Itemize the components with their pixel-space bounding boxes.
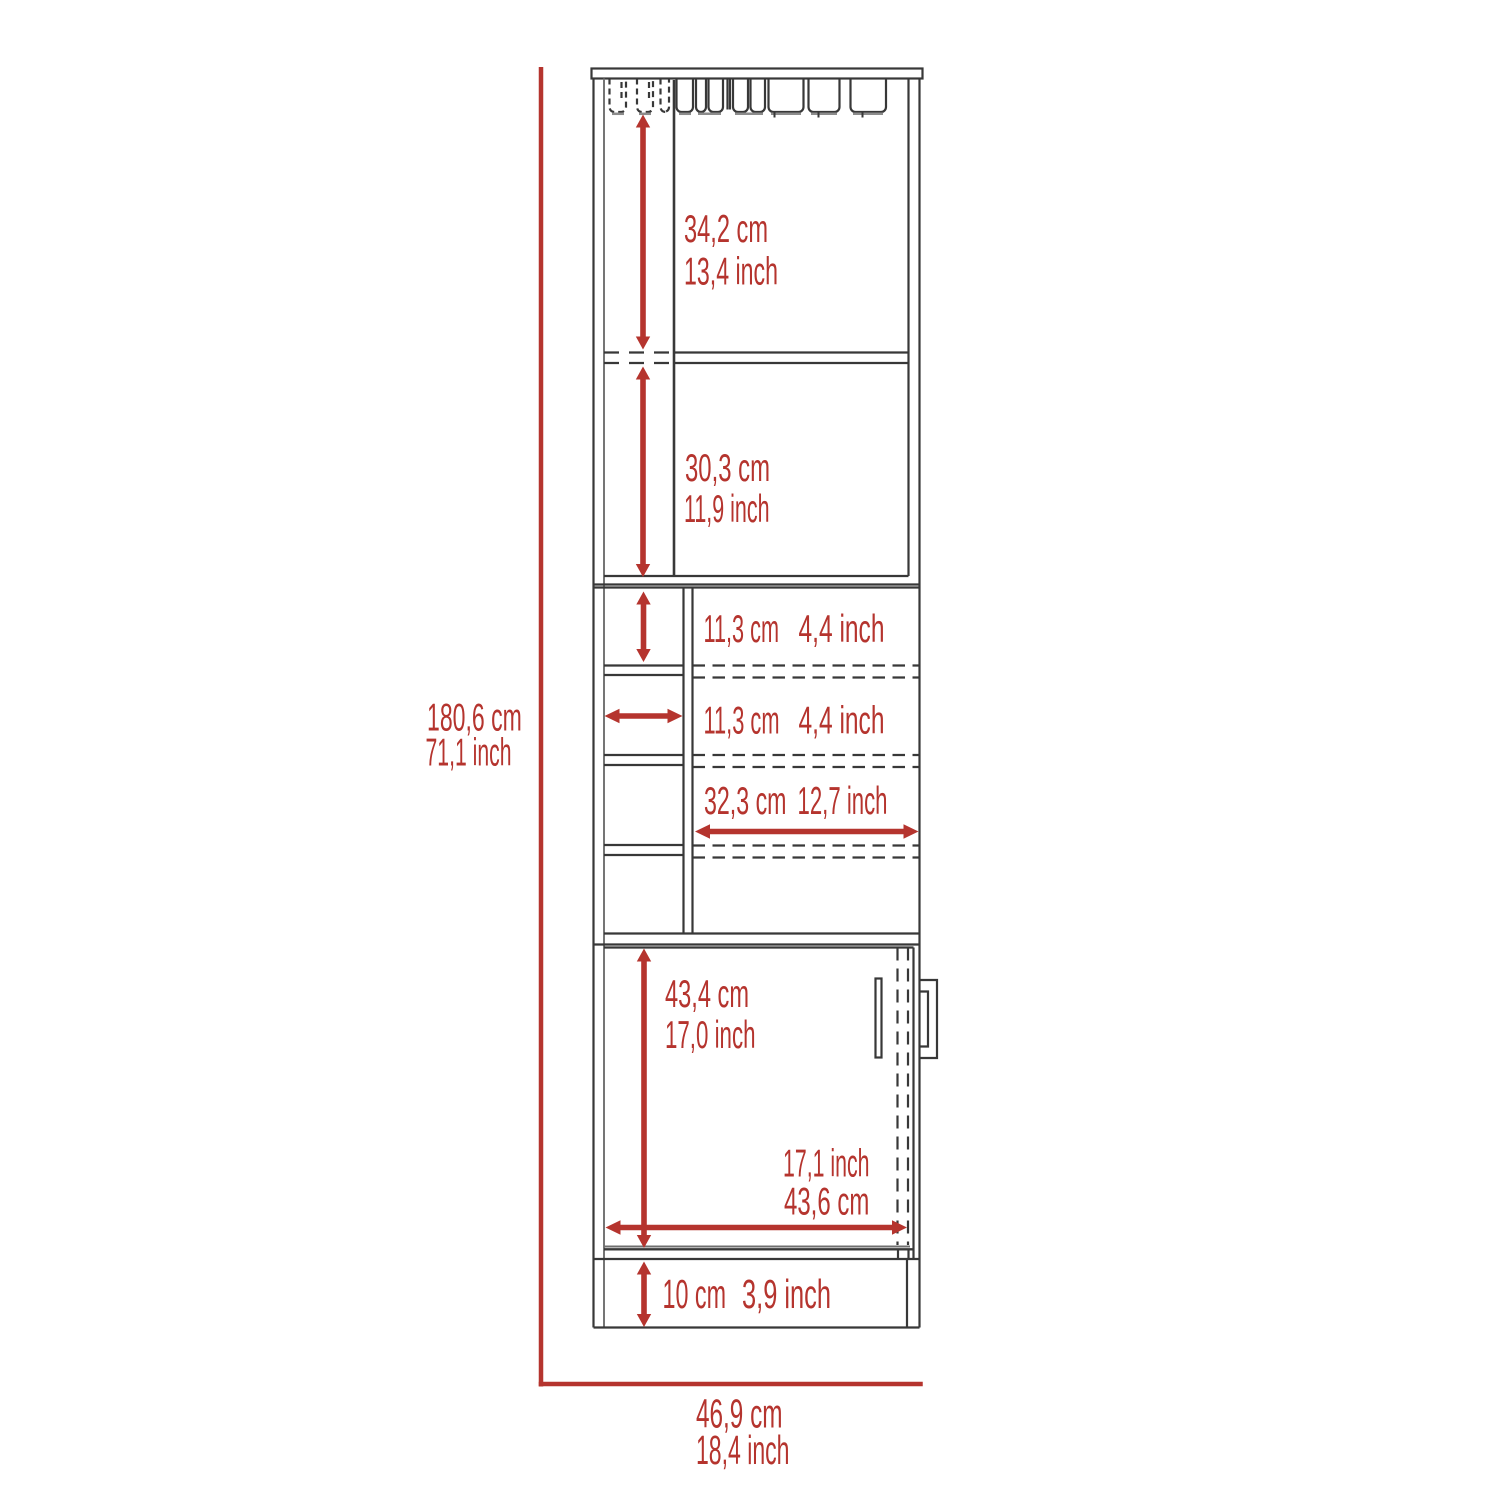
svg-text:43,6 cm: 43,6 cm <box>784 1181 869 1224</box>
svg-text:4,4 inch: 4,4 inch <box>799 700 885 743</box>
svg-text:10 cm: 10 cm <box>663 1271 727 1317</box>
svg-text:43,4 cm: 43,4 cm <box>665 973 749 1016</box>
svg-text:11,3 cm: 11,3 cm <box>704 608 780 651</box>
svg-text:30,3 cm: 30,3 cm <box>685 447 770 490</box>
svg-text:71,1 inch: 71,1 inch <box>426 732 512 775</box>
svg-text:11,9 inch: 11,9 inch <box>684 488 770 531</box>
svg-text:3,9 inch: 3,9 inch <box>742 1271 831 1317</box>
svg-text:34,2 cm: 34,2 cm <box>684 208 768 251</box>
svg-text:32,3 cm: 32,3 cm <box>704 780 787 823</box>
svg-text:17,1 inch: 17,1 inch <box>783 1143 870 1186</box>
svg-text:11,3 cm: 11,3 cm <box>704 700 780 743</box>
svg-text:18,4 inch: 18,4 inch <box>696 1427 790 1473</box>
svg-text:17,0 inch: 17,0 inch <box>665 1014 756 1057</box>
svg-text:12,7 inch: 12,7 inch <box>798 780 888 823</box>
svg-text:13,4 inch: 13,4 inch <box>684 251 778 294</box>
svg-text:4,4 inch: 4,4 inch <box>799 608 885 651</box>
